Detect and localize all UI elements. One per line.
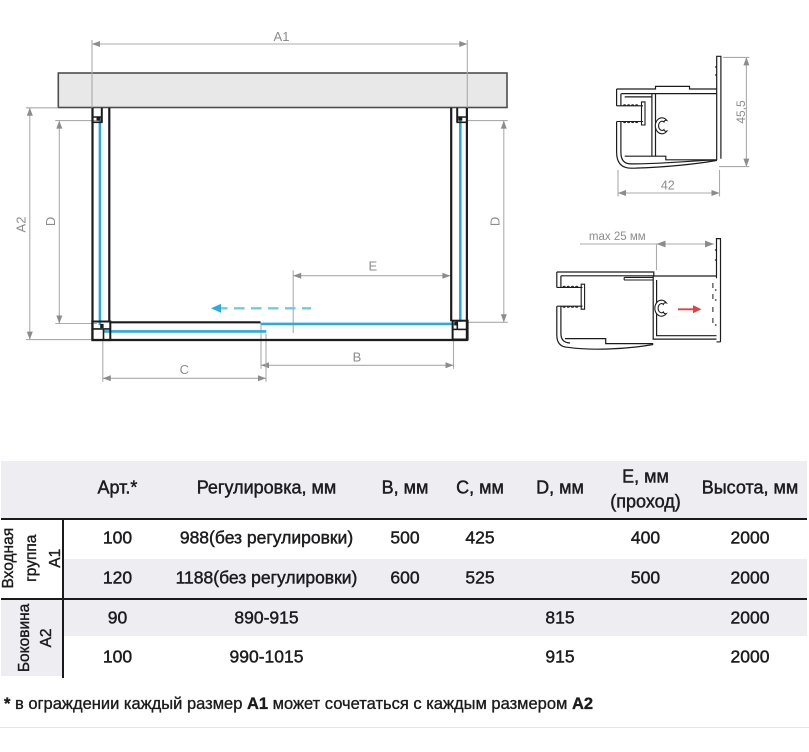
svg-text:D: D <box>43 217 58 226</box>
svg-text:C: C <box>180 362 189 377</box>
svg-text:D: D <box>488 217 503 226</box>
svg-text:45,5: 45,5 <box>734 100 748 124</box>
svg-text:E: E <box>368 259 377 274</box>
svg-text:42: 42 <box>661 179 675 193</box>
svg-text:A2: A2 <box>14 217 29 233</box>
svg-text:B: B <box>353 350 362 365</box>
svg-text:max 25 мм: max 25 мм <box>589 231 646 243</box>
svg-text:A1: A1 <box>274 29 290 44</box>
